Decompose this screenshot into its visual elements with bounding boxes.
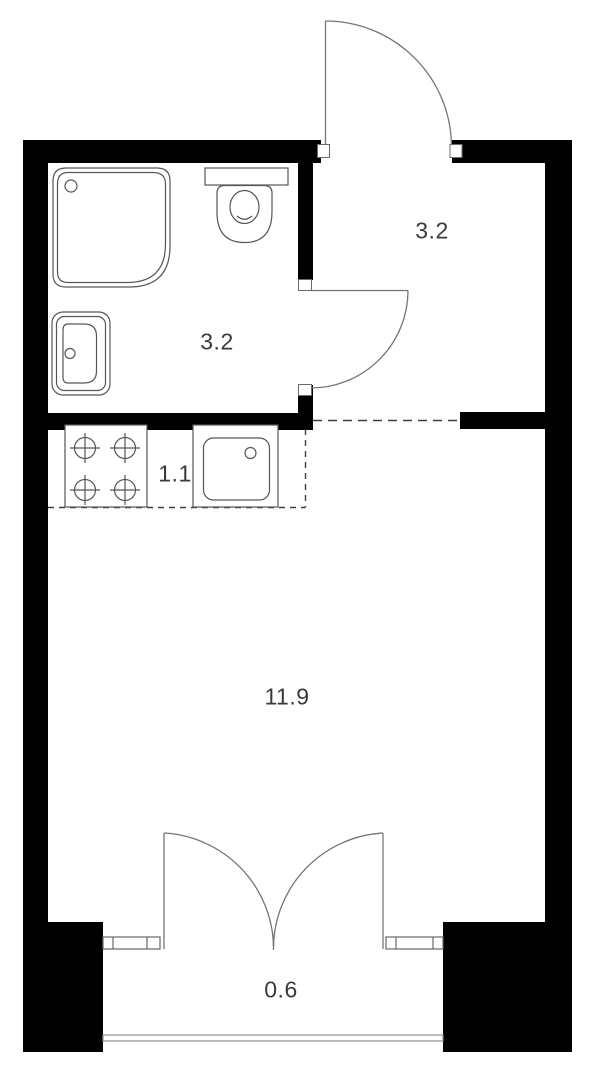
window-right bbox=[386, 937, 443, 949]
entrance-door-arc bbox=[326, 21, 452, 147]
bathroom-door bbox=[311, 291, 409, 389]
kitchen-sink bbox=[193, 425, 278, 507]
room-label-living-room: 11.9 bbox=[264, 684, 309, 711]
balcony-double-door bbox=[164, 833, 383, 950]
floor-plan-drawing bbox=[0, 0, 600, 1076]
wall-hallway-stub bbox=[460, 412, 545, 429]
room-label-kitchen-niche: 1.1 bbox=[158, 461, 191, 488]
room-label-hallway: 3.2 bbox=[415, 218, 448, 245]
floor-plan: 3.2 3.2 1.1 11.9 0.6 bbox=[0, 0, 600, 1076]
toilet-bowl bbox=[217, 186, 272, 243]
bathroom-door-arc bbox=[311, 291, 409, 389]
wall-balcony-right-block bbox=[443, 922, 572, 1052]
room-label-bathroom: 3.2 bbox=[200, 329, 233, 356]
room-label-balcony: 0.6 bbox=[264, 977, 297, 1004]
shower-tray-outer bbox=[53, 168, 170, 287]
wall-left-outer bbox=[23, 140, 48, 1052]
hinge-box bbox=[318, 145, 330, 158]
wall-bathroom-partition-upper bbox=[298, 163, 313, 280]
wall-balcony-left-block bbox=[23, 922, 103, 1052]
wall-right-outer bbox=[545, 140, 572, 1052]
entrance-door bbox=[326, 21, 452, 147]
hinge-box bbox=[450, 145, 462, 158]
stove bbox=[65, 425, 147, 507]
kitchen-sink-counter bbox=[193, 425, 278, 507]
balcony-door-right-arc bbox=[274, 833, 384, 946]
washbasin bbox=[52, 312, 110, 395]
toilet-cistern bbox=[205, 168, 288, 185]
balcony-door-left-arc bbox=[164, 833, 274, 946]
wall-top-left-segment bbox=[23, 140, 321, 163]
shower-tray bbox=[53, 168, 170, 287]
toilet bbox=[205, 168, 288, 243]
balcony-railing bbox=[103, 1035, 443, 1041]
hinge-box bbox=[299, 280, 312, 291]
hinge-box bbox=[299, 385, 312, 396]
window-left bbox=[103, 937, 160, 949]
